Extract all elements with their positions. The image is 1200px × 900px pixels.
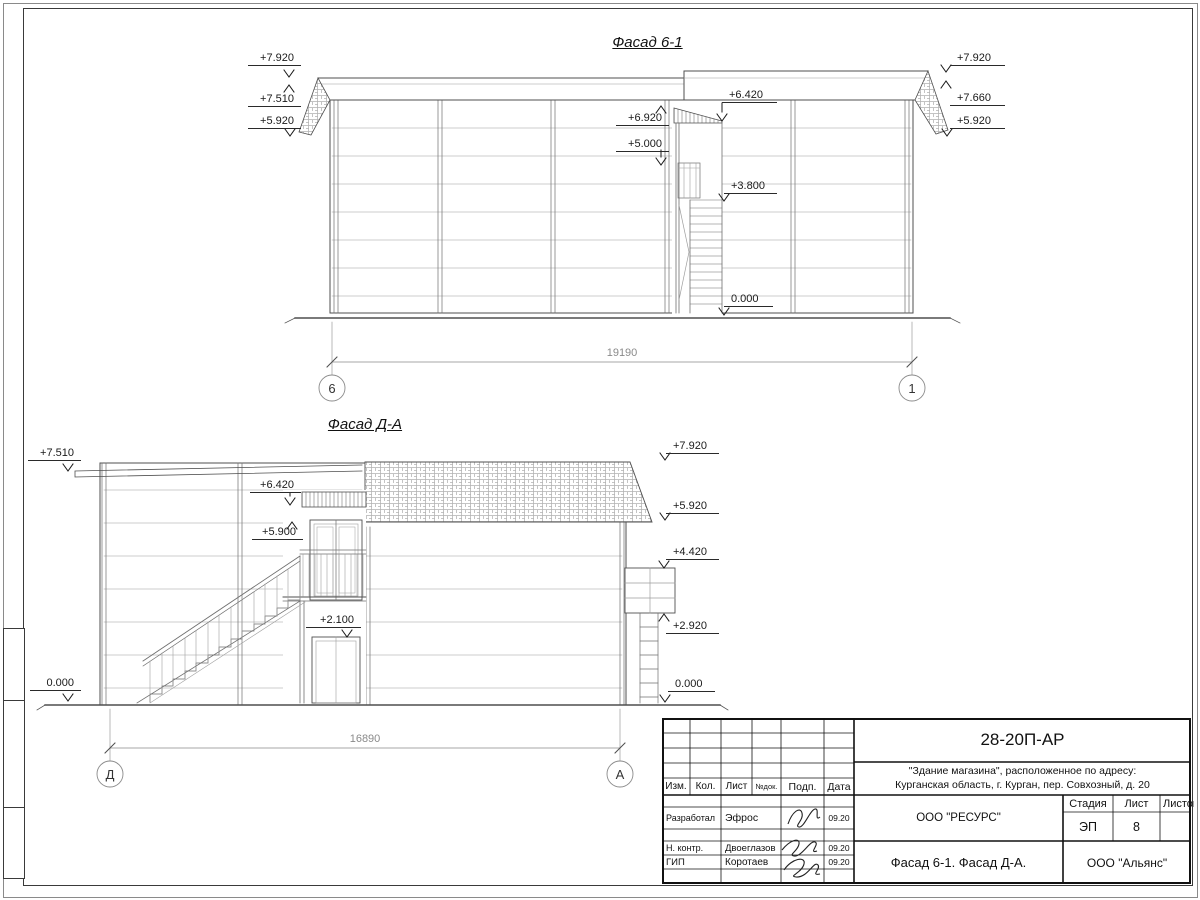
drawing-sheet: Фасад 6-1 Фасад Д-А +7.920 +7.510 +5.920… [0, 0, 1200, 900]
row-ncontrol-role: Н. контр. [663, 841, 722, 855]
project-description-line1: "Здание магазина", расположенное по адре… [854, 764, 1191, 778]
project-description-line2: Курганская область, г. Курган, пер. Совх… [854, 778, 1191, 792]
col-header-data: Дата [824, 778, 854, 795]
elev-f2-r-5920: +5.920 [666, 500, 719, 514]
row-ncontrol-date: 09.20 [824, 841, 854, 855]
elev-f1-l-7510: +7.510 [248, 93, 301, 107]
elev-f1-r-5920: +5.920 [950, 115, 1005, 129]
sheet-label: Лист [1113, 795, 1160, 812]
axis-a: А [610, 767, 630, 782]
row-gip-role: ГИП [663, 855, 722, 869]
row-gip-name: Коротаев [722, 855, 783, 869]
row-developer-date: 09.20 [824, 807, 854, 829]
dim-19190: 19190 [580, 347, 664, 359]
document-number: 28-20П-АР [854, 718, 1191, 762]
row-ncontrol-name: Двоеглазов [722, 841, 783, 855]
elev-f1-m-6920: +6.920 [616, 112, 669, 126]
elev-f1-m-5000: +5.000 [616, 138, 669, 152]
col-header-podp: Подп. [781, 778, 824, 795]
col-header-izm: Изм. [662, 778, 690, 795]
elev-f2-r-4420: +4.420 [666, 546, 719, 560]
elev-f1-m-6420: +6.420 [722, 89, 777, 103]
axis-1: 1 [902, 381, 922, 396]
sheets-label: Листов [1160, 795, 1194, 812]
sheet-number-value: 8 [1113, 812, 1160, 841]
elev-f2-r-7920: +7.920 [666, 440, 719, 454]
elev-f1-m-0000: 0.000 [724, 293, 773, 307]
elev-f1-m-3800: +3.800 [724, 180, 777, 194]
elev-f2-m-5900: +5.900 [252, 526, 303, 540]
elev-f1-l-7920: +7.920 [248, 52, 301, 66]
elev-f2-m-2100: +2.100 [306, 614, 361, 628]
facade-2-title: Фасад Д-А [290, 416, 440, 433]
row-gip-date: 09.20 [824, 855, 854, 869]
title-block: Изм. Кол. Лист №док. Подп. Дата Разработ… [662, 718, 1191, 884]
elev-f1-l-5920: +5.920 [248, 115, 301, 129]
design-org: ООО "Альянс" [1063, 841, 1191, 884]
axis-6: 6 [322, 381, 342, 396]
facade-1-title: Фасад 6-1 [560, 34, 735, 51]
col-header-kol: Кол. [690, 778, 721, 795]
row-developer-name: Эфрос [722, 807, 783, 829]
customer-org: ООО "РЕСУРС" [854, 795, 1063, 841]
elev-f2-m-6420: +6.420 [250, 479, 301, 493]
drawing-title: Фасад 6-1. Фасад Д-А. [854, 841, 1063, 884]
col-header-ndok: №док. [752, 778, 781, 795]
col-header-list: Лист [721, 778, 752, 795]
elev-f2-r-0000: 0.000 [668, 678, 715, 692]
row-developer-role: Разработал [663, 807, 722, 829]
elev-f1-r-7920: +7.920 [950, 52, 1005, 66]
dim-16890: 16890 [323, 733, 407, 745]
stage-value: ЭП [1063, 812, 1113, 841]
elev-f1-r-7660: +7.660 [950, 92, 1005, 106]
axis-d: Д [100, 767, 120, 782]
elev-f2-l-0000: 0.000 [30, 677, 81, 691]
elev-f2-l-7510: +7.510 [28, 447, 81, 461]
stage-label: Стадия [1063, 795, 1113, 812]
elev-f2-r-2920: +2.920 [666, 620, 719, 634]
